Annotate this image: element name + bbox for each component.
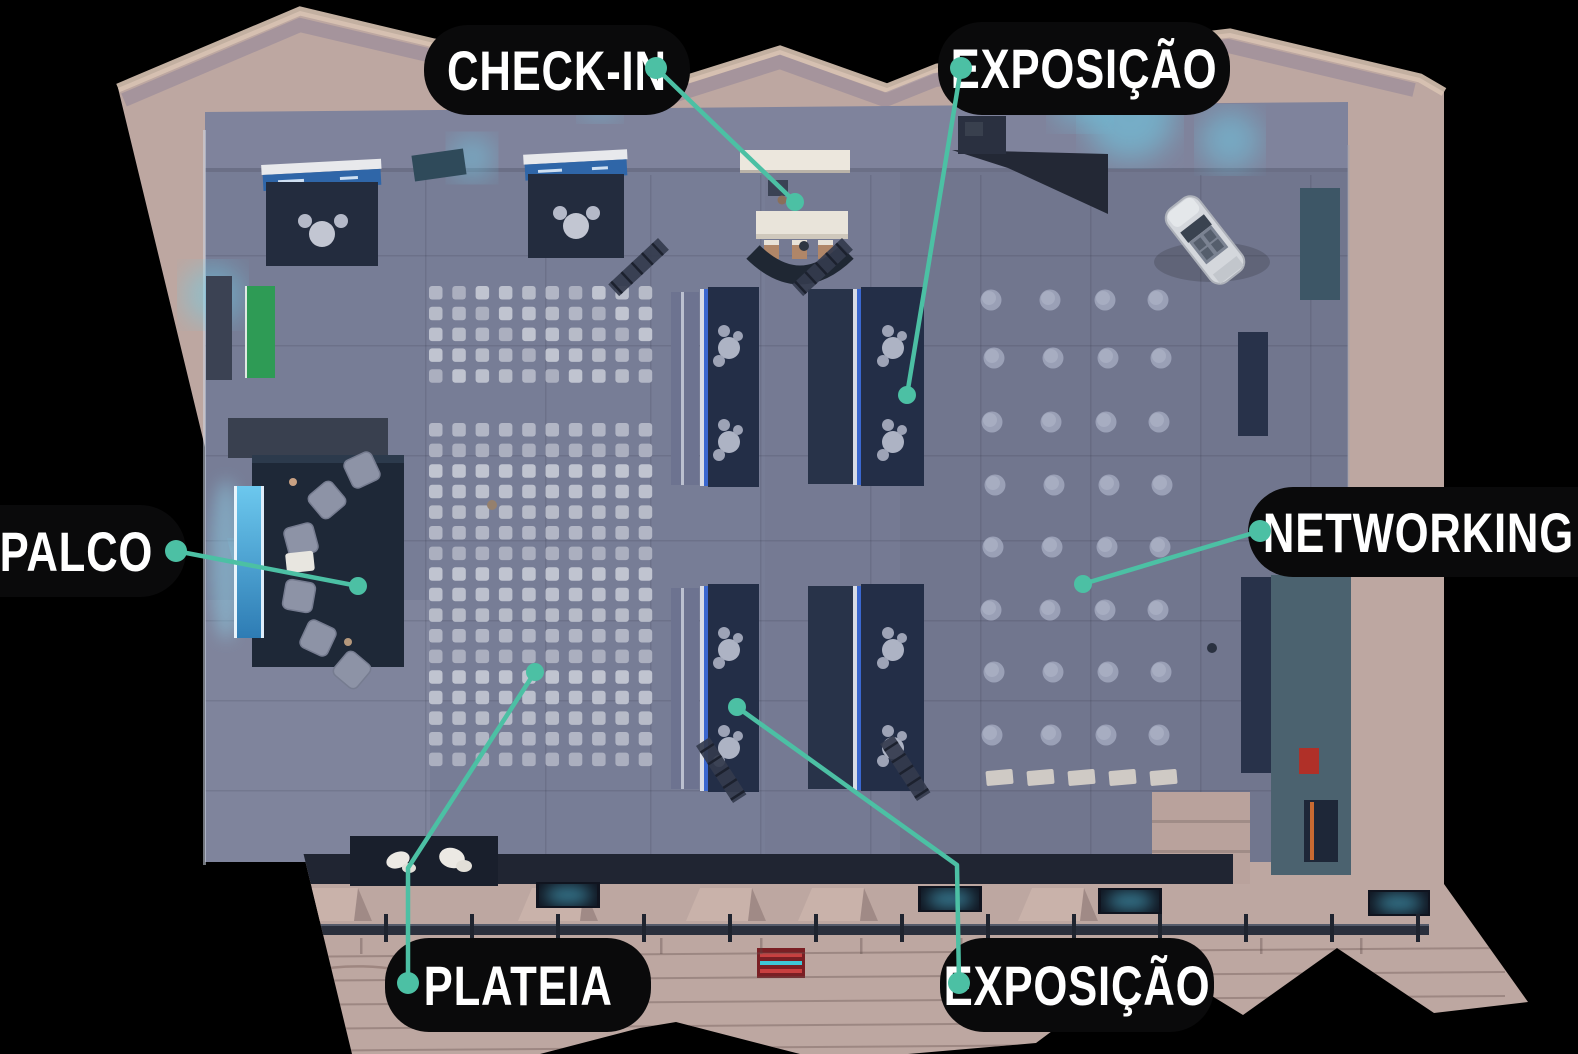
callout-palco[interactable]: PALCO [0, 505, 186, 597]
callout-plateia-label: PLATEIA [423, 953, 612, 1018]
callout-exposicao-top[interactable]: EXPOSIÇÃO [938, 22, 1230, 115]
callout-exposicao-bottom-label: EXPOSIÇÃO [944, 953, 1211, 1018]
callout-networking-label: NETWORKING [1262, 500, 1573, 565]
sculpture-display [350, 836, 498, 886]
callout-exposicao-bottom[interactable]: EXPOSIÇÃO [940, 938, 1214, 1032]
callout-palco-label: PALCO [0, 519, 153, 584]
callout-check-in-label: CHECK-IN [447, 38, 667, 103]
fire-extinguisher-cabinet [1299, 748, 1319, 774]
callout-check-in[interactable]: CHECK-IN [424, 25, 690, 115]
checkin-counter [756, 211, 848, 237]
callout-networking[interactable]: NETWORKING [1248, 487, 1578, 577]
stage-led-screen [237, 486, 261, 638]
venue-floorplan: CHECK-IN EXPOSIÇÃO PALCO NETWORKING PLAT… [0, 0, 1578, 1054]
callout-exposicao-top-label: EXPOSIÇÃO [951, 36, 1218, 101]
callout-plateia[interactable]: PLATEIA [385, 938, 651, 1032]
